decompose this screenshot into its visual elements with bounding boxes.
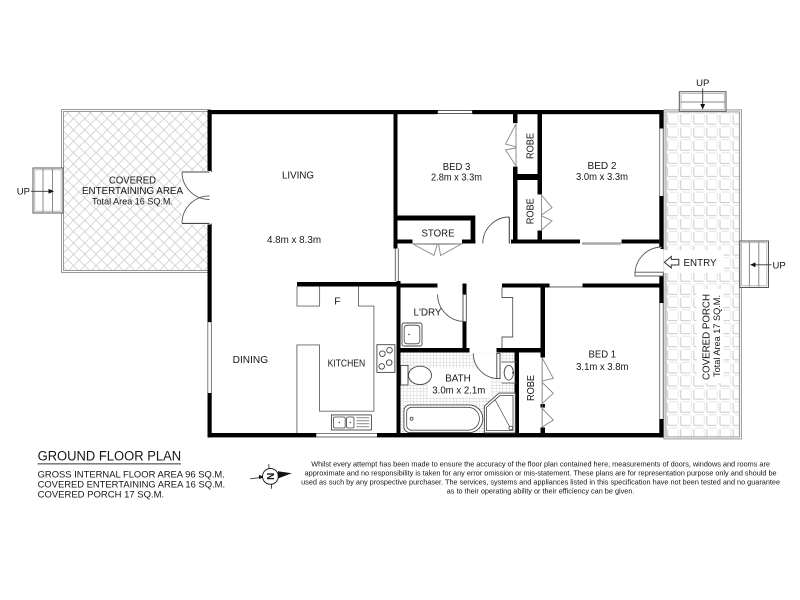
svg-text:2.8m x 3.3m: 2.8m x 3.3m	[431, 173, 482, 184]
svg-text:DINING: DINING	[233, 355, 269, 366]
svg-text:Total Area 16 SQ.M.: Total Area 16 SQ.M.	[92, 197, 173, 207]
svg-text:4.8m x 8.3m: 4.8m x 8.3m	[267, 235, 321, 246]
svg-text:F: F	[334, 295, 340, 307]
svg-text:BED 1: BED 1	[589, 350, 617, 361]
svg-text:ROBE: ROBE	[526, 133, 537, 159]
svg-text:N: N	[264, 473, 275, 480]
svg-text:BED 3: BED 3	[443, 162, 471, 173]
svg-text:LIVING: LIVING	[282, 170, 314, 181]
svg-text:as to their operating ability: as to their operating ability or their e…	[447, 487, 635, 496]
svg-text:UP: UP	[773, 260, 786, 271]
svg-text:3.1m x 3.8m: 3.1m x 3.8m	[576, 362, 628, 373]
svg-text:UP: UP	[696, 78, 709, 89]
svg-text:approximate and no responsibil: approximate and no responsibility is tak…	[305, 469, 777, 478]
svg-text:Total Area 17 SQ.M.: Total Area 17 SQ.M.	[712, 295, 722, 377]
svg-text:KITCHEN: KITCHEN	[328, 358, 366, 369]
svg-text:COVERED: COVERED	[109, 175, 156, 186]
svg-text:COVERED PORCH: COVERED PORCH	[701, 294, 712, 380]
svg-text:3.0m x 3.3m: 3.0m x 3.3m	[576, 172, 628, 183]
svg-text:ROBE: ROBE	[526, 198, 537, 224]
svg-text:Whilst every attempt has been: Whilst every attempt has been made to en…	[311, 460, 770, 469]
svg-text:ENTRY: ENTRY	[684, 258, 717, 269]
svg-text:STORE: STORE	[422, 229, 455, 240]
svg-text:BED 2: BED 2	[588, 161, 617, 172]
svg-text:GROUND FLOOR PLAN: GROUND FLOOR PLAN	[38, 449, 182, 465]
svg-text:UP: UP	[17, 186, 30, 197]
svg-text:COVERED PORCH 17 SQ.M.: COVERED PORCH 17 SQ.M.	[38, 489, 165, 500]
svg-text:ROBE: ROBE	[526, 375, 537, 401]
svg-text:L'DRY: L'DRY	[414, 307, 442, 318]
svg-text:3.0m x 2.1m: 3.0m x 2.1m	[432, 385, 485, 396]
svg-text:ENTERTAINING AREA: ENTERTAINING AREA	[82, 186, 184, 197]
svg-text:BATH: BATH	[445, 374, 471, 385]
svg-text:used as such by any prospectiv: used as such by any prospective purchase…	[301, 478, 780, 487]
